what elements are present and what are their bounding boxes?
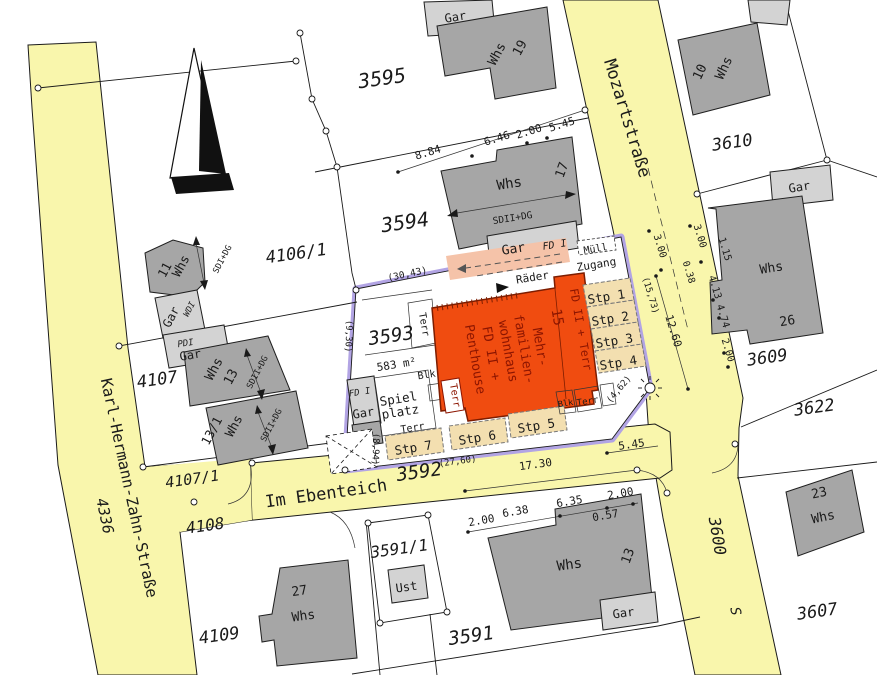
parcel-3594: 3594 — [379, 207, 431, 238]
whs23-number: 23 — [810, 485, 828, 503]
parcel-3622: 3622 — [792, 395, 836, 421]
parcel-3607: 3607 — [795, 599, 840, 625]
whs26-number: 26 — [779, 313, 797, 330]
parcel-3591: 3591 — [446, 622, 495, 650]
site-plan-page: Mozartstraße Karl-Hermann-Zahn-Straße Im… — [0, 0, 877, 675]
dim-200c: 2.00 — [467, 512, 495, 529]
ust-label: Ust — [395, 579, 418, 596]
dim-646: 6.46 — [482, 128, 511, 148]
parcel-3609: 3609 — [745, 345, 789, 371]
dim-884: 8.84 — [413, 142, 442, 162]
boundary-line — [352, 626, 658, 674]
dashed-x-structure — [326, 429, 377, 474]
boundary-line — [787, 7, 827, 160]
parcel-3595: 3595 — [356, 63, 408, 94]
whs11-roof: SDI+DG — [211, 244, 234, 276]
boundary-line — [737, 462, 877, 478]
parcel-4107: 4107 — [136, 367, 180, 393]
dim-930: (9,30) — [342, 320, 353, 353]
whs27-number: 27 — [291, 583, 309, 600]
mfh-number: 15 — [548, 308, 567, 327]
parcel-4106-1: 4106/1 — [265, 240, 329, 268]
garage-building — [748, 0, 790, 25]
street-label-4108: 4108 — [185, 513, 226, 537]
ray-point-symbol — [638, 376, 662, 400]
boundary-line — [430, 614, 437, 675]
dim-545a: 5.45 — [547, 114, 576, 134]
dim-200a: 2.00 — [514, 121, 543, 141]
boundary-line — [119, 302, 357, 346]
dim-638: 6.38 — [501, 503, 529, 520]
north-arrow — [170, 48, 234, 194]
parcel-3591-1: 3591/1 — [368, 535, 429, 562]
boundary-line — [827, 160, 877, 177]
dim-894: (8,94) — [369, 433, 380, 466]
cadastral-map: Mozartstraße Karl-Hermann-Zahn-Straße Im… — [0, 0, 877, 675]
parcel-4109: 4109 — [198, 623, 241, 649]
gar13b-label: Gar — [612, 605, 635, 622]
curb-curve — [330, 512, 355, 548]
parcel-3610: 3610 — [710, 130, 754, 156]
